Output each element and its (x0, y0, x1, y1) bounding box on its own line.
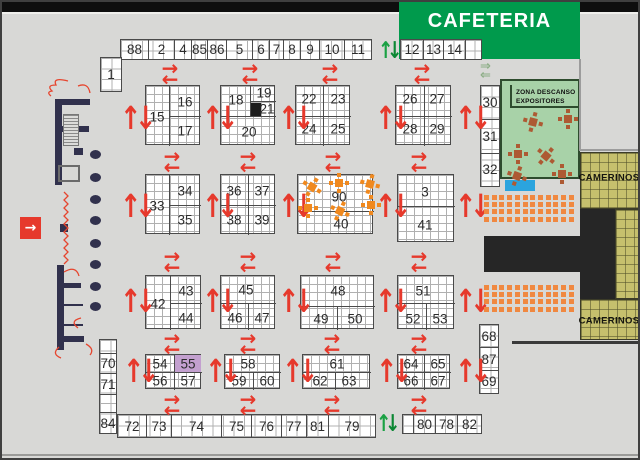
red-updown-arrows: ↑↓ (123, 355, 160, 387)
booth-label-74: 74 (189, 419, 204, 434)
plan-blue (505, 180, 535, 191)
red-aisle-arrows: →← (400, 251, 438, 273)
seat (553, 285, 558, 290)
seat (523, 202, 528, 207)
seat (492, 209, 497, 214)
plan-line-dark (512, 341, 640, 344)
seat (530, 307, 535, 312)
red-aisle-arrows: →← (229, 151, 267, 173)
red-aisle-arrows: →← (153, 394, 191, 416)
booth90-table-icon (335, 179, 343, 187)
seat (515, 307, 520, 312)
column-oval (90, 239, 101, 248)
door-arc-bottom-right (86, 344, 92, 355)
column-oval (90, 260, 101, 269)
booth-label-35: 35 (177, 213, 192, 228)
seat (569, 195, 574, 200)
left-arrow-icon: ← (400, 162, 438, 173)
strip-cell-11: 11 (344, 40, 371, 59)
seat (538, 217, 543, 222)
booth-label-17: 17 (177, 124, 192, 139)
seat (507, 299, 512, 304)
strip-cell-88: 88 (121, 40, 148, 59)
down-arrow-icon: ↓ (217, 187, 238, 225)
camerinos-label: CAMERINOS (579, 173, 640, 184)
door-arc-mid (64, 269, 79, 276)
seat (546, 195, 551, 200)
seat (569, 292, 574, 297)
red-updown-arrows: ↑↓ (278, 102, 315, 134)
strip-cell-9: 9 (300, 40, 319, 59)
column-oval (90, 173, 101, 182)
column-oval (90, 216, 101, 225)
seat (523, 299, 528, 304)
left-arrow-icon: ← (229, 405, 267, 416)
strip-cell-7: 7 (269, 40, 283, 59)
red-updown-arrows: ↑↓ (205, 355, 242, 387)
door-arc-lower (74, 318, 81, 328)
booth-label-72: 72 (124, 419, 139, 434)
booth-label-63: 63 (341, 374, 356, 389)
booth-label-84: 84 (100, 416, 115, 431)
door-arc-top-left (49, 80, 68, 96)
door-arc-top-right (78, 85, 90, 93)
seat (530, 292, 535, 297)
left-arrow-icon: ← (153, 162, 191, 173)
booth-label-47: 47 (254, 311, 269, 326)
down-arrow-icon: ↓ (470, 99, 491, 137)
rest-area-table-icon (558, 170, 566, 178)
red-aisle-arrows: →← (153, 151, 191, 173)
seat (561, 299, 566, 304)
seat (484, 292, 489, 297)
seat (515, 285, 520, 290)
seating-grid (484, 285, 576, 314)
seat (546, 217, 551, 222)
plan-wall (74, 148, 83, 155)
strip-cell-77: 77 (281, 415, 306, 437)
column-oval (90, 195, 101, 204)
strip-cell-86: 86 (207, 40, 226, 59)
booth-label-2: 2 (158, 42, 166, 57)
left-arrow-icon: ← (151, 74, 189, 85)
booth-label-32: 32 (482, 162, 497, 177)
red-updown-arrows: ↑↓ (120, 102, 157, 134)
seat (530, 209, 535, 214)
camerinos-area (615, 209, 640, 299)
seat (569, 209, 574, 214)
red-aisle-arrows: →← (313, 333, 351, 355)
booth-label-81: 81 (310, 419, 325, 434)
down-arrow-icon: ↓ (217, 99, 238, 137)
seat (538, 202, 543, 207)
plan-wall (60, 224, 68, 232)
booth-label-85: 85 (192, 42, 207, 57)
rest-area-label-line1: ZONA DESCANSO (516, 88, 578, 97)
seat (484, 195, 489, 200)
left-arrow-icon: ← (231, 74, 269, 85)
down-arrow-icon: ↓ (390, 187, 411, 225)
red-aisle-arrows: →← (400, 333, 438, 355)
red-updown-arrows: ↑↓ (202, 285, 239, 317)
plan-wall (64, 283, 81, 288)
down-arrow-icon: ↓ (220, 352, 241, 390)
booth-label-57: 57 (180, 374, 195, 389)
booth-label-65: 65 (430, 357, 445, 372)
booth-label-82: 82 (462, 417, 477, 432)
booth90-table-icon (304, 204, 312, 212)
seat (515, 202, 520, 207)
seat (507, 209, 512, 214)
down-arrow-icon: ↓ (390, 282, 411, 320)
booth-label-34: 34 (177, 184, 192, 199)
seat (499, 209, 504, 214)
seat (569, 202, 574, 207)
seat (553, 299, 558, 304)
seating-grid (484, 195, 576, 224)
bottom-wall-line (2, 454, 638, 456)
booth-label-48: 48 (330, 284, 345, 299)
booth-label-16: 16 (177, 95, 192, 110)
booth-label-39: 39 (254, 213, 269, 228)
strip-cell-85: 85 (191, 40, 207, 59)
rest-area-table-icon (564, 115, 572, 123)
booth-label-29: 29 (429, 122, 444, 137)
seat (515, 299, 520, 304)
seat (484, 307, 489, 312)
seat (569, 307, 574, 312)
seat (561, 195, 566, 200)
seat (530, 285, 535, 290)
strip-cell (100, 340, 116, 353)
red-updown-arrows: ↑↓ (455, 102, 492, 134)
booth-label-67: 67 (430, 374, 445, 389)
left-arrow-icon: ← (400, 262, 438, 273)
left-arrow-icon: ← (403, 74, 441, 85)
booth-label-40: 40 (333, 217, 348, 232)
down-arrow-icon: ↓ (135, 187, 156, 225)
plan-stair (63, 114, 79, 146)
left-arrow-icon: ← (229, 262, 267, 273)
seat (538, 209, 543, 214)
down-arrow-icon: ↓ (390, 99, 411, 137)
camerinos-label: CAMERINOS (579, 316, 640, 327)
red-aisle-arrows: →← (400, 394, 438, 416)
red-updown-arrows: ↑↓ (375, 102, 412, 134)
seat (538, 299, 543, 304)
booth-divider (170, 303, 202, 304)
red-aisle-arrows: →← (403, 63, 441, 85)
left-arrow-icon: ← (313, 405, 351, 416)
seat (530, 195, 535, 200)
seat (499, 195, 504, 200)
plan-stage (484, 236, 580, 272)
column-oval (90, 150, 101, 159)
plan-stage (580, 209, 615, 299)
down-arrow-icon: ↓ (217, 282, 238, 320)
rest-area-label-line2: EXPOSITORES (516, 97, 578, 106)
down-arrow-icon: ↓ (391, 352, 412, 390)
booth-label-53: 53 (432, 312, 447, 327)
seat (546, 209, 551, 214)
booth-label-11: 11 (351, 42, 365, 57)
booth-label-10: 10 (324, 42, 339, 57)
strip-cell-72: 72 (118, 415, 146, 437)
red-updown-arrows: ↑↓ (375, 285, 412, 317)
seat (530, 217, 535, 222)
strip-top-strip-right: 121314 (400, 39, 482, 60)
seat (484, 217, 489, 222)
booth-label-45: 45 (238, 283, 253, 298)
seat (507, 307, 512, 312)
booth-label-71: 71 (100, 377, 115, 392)
down-arrow-icon: ↓ (138, 352, 159, 390)
booth-label-43: 43 (178, 284, 193, 299)
red-aisle-arrows: →← (151, 63, 189, 85)
plan-wall (55, 99, 90, 105)
down-arrow-icon: ↓ (387, 38, 402, 64)
plan-wall (64, 304, 83, 306)
red-aisle-arrows: →← (314, 251, 352, 273)
booth-label-6: 6 (257, 42, 265, 57)
strip-strip-70-84: 707184 (99, 339, 117, 434)
cafeteria-label: CAFETERIA (399, 10, 580, 33)
seat (561, 217, 566, 222)
plan-line-gray (579, 149, 640, 151)
seat (499, 217, 504, 222)
seat (523, 195, 528, 200)
booth-label-20: 20 (241, 125, 256, 140)
strip-cell (100, 394, 116, 413)
seat (484, 299, 489, 304)
seat (499, 307, 504, 312)
booth-label-50: 50 (347, 312, 362, 327)
plan-wall (57, 265, 64, 350)
seat (546, 292, 551, 297)
booth-label-86: 86 (209, 42, 224, 57)
seat (569, 217, 574, 222)
column-oval (90, 282, 101, 291)
strip-cell-71: 71 (100, 373, 116, 394)
plan-room (58, 165, 80, 182)
strip-cell-82: 82 (457, 415, 481, 433)
red-aisle-arrows: →← (153, 333, 191, 355)
entrance-marker: → (20, 217, 41, 239)
down-arrow-icon: ↓ (385, 411, 400, 437)
seat (546, 285, 551, 290)
left-arrow-icon: ← (400, 344, 438, 355)
red-aisle-arrows: →← (231, 63, 269, 85)
strip-cell-70: 70 (100, 353, 116, 374)
left-arrow-icon: ← (229, 162, 267, 173)
seat (546, 307, 551, 312)
booth-label-4: 4 (179, 42, 187, 57)
seat (492, 202, 497, 207)
seat (515, 209, 520, 214)
left-arrow-icon: ← (400, 405, 438, 416)
booth-label-27: 27 (429, 92, 444, 107)
seat (484, 209, 489, 214)
seat (530, 299, 535, 304)
green-double-arrows: ⇒⇐ (480, 62, 491, 80)
booth-label-7: 7 (273, 42, 281, 57)
booth-label-19: 19 (256, 86, 271, 101)
rest-area-label: ZONA DESCANSO EXPOSITORES (510, 85, 578, 108)
down-arrow-icon: ↓ (293, 282, 314, 320)
left-arrow-icon: ← (229, 344, 267, 355)
seat (523, 307, 528, 312)
booth-label-13: 13 (426, 42, 441, 57)
seat (569, 285, 574, 290)
plan-wall (64, 324, 83, 326)
seat (561, 285, 566, 290)
entrance-arrow-icon: → (25, 220, 37, 236)
seat (507, 195, 512, 200)
strip-cell-8: 8 (283, 40, 300, 59)
seat (561, 202, 566, 207)
left-arrow-icon: ← (311, 74, 349, 85)
seat (538, 292, 543, 297)
booth-divider (169, 205, 201, 206)
down-arrow-icon: ↓ (470, 352, 491, 390)
seat (499, 202, 504, 207)
seat (492, 307, 497, 312)
seat (538, 307, 543, 312)
seat (538, 195, 543, 200)
seat (553, 217, 558, 222)
seat (492, 285, 497, 290)
seat (553, 202, 558, 207)
booth-label-88: 88 (127, 42, 142, 57)
seat (538, 285, 543, 290)
left-arrow-icon: ← (314, 162, 352, 173)
booth-label-44: 44 (178, 311, 193, 326)
strip-cell-1: 1 (101, 58, 121, 91)
booth-label-55: 55 (180, 357, 195, 372)
seat (507, 292, 512, 297)
strip-booth-1: 1 (100, 57, 122, 92)
strip-cell-14: 14 (443, 40, 465, 59)
down-arrow-icon: ↓ (135, 282, 156, 320)
green-updown-arrows: ↑↓ (376, 413, 400, 436)
plan-line-gray (579, 59, 581, 151)
seat (523, 292, 528, 297)
booth90-table-icon (367, 201, 375, 209)
left-arrow-icon: ← (153, 405, 191, 416)
strip-cell-32: 32 (481, 153, 499, 186)
booth-label-14: 14 (447, 42, 462, 57)
down-arrow-icon: ↓ (293, 99, 314, 137)
seat (523, 209, 528, 214)
booth-label-70: 70 (100, 356, 115, 371)
red-aisle-arrows: →← (311, 63, 349, 85)
seat (492, 292, 497, 297)
booth-label-68: 68 (481, 329, 496, 344)
seat (492, 195, 497, 200)
red-updown-arrows: ↑↓ (375, 190, 412, 222)
double-left-arrow-icon: ⇐ (480, 71, 491, 80)
red-aisle-arrows: →← (153, 251, 191, 273)
seat (507, 202, 512, 207)
down-arrow-icon: ↓ (135, 99, 156, 137)
strip-cell (465, 40, 481, 59)
rest-area: ZONA DESCANSO EXPOSITORES (500, 79, 580, 179)
seat (569, 299, 574, 304)
red-updown-arrows: ↑↓ (120, 285, 157, 317)
seat (484, 285, 489, 290)
booth-label-12: 12 (404, 42, 419, 57)
booth-label-79: 79 (344, 419, 359, 434)
strip-cell-68: 68 (480, 325, 498, 347)
seat (484, 202, 489, 207)
booth-label-90: 90 (331, 190, 346, 205)
seat (515, 217, 520, 222)
seat (492, 299, 497, 304)
strip-cell-84: 84 (100, 412, 116, 433)
booth-label-76: 76 (259, 419, 274, 434)
seat (561, 209, 566, 214)
booth-label-25: 25 (330, 122, 345, 137)
booth-label-8: 8 (288, 42, 296, 57)
seat (553, 307, 558, 312)
left-arrow-icon: ← (153, 262, 191, 273)
red-aisle-arrows: →← (400, 151, 438, 173)
booth-label-51: 51 (415, 284, 430, 299)
rest-area-table-icon (514, 150, 522, 158)
seat (553, 292, 558, 297)
red-updown-arrows: ↑↓ (120, 190, 157, 222)
strip-cell-78: 78 (435, 415, 457, 433)
booth-label-3: 3 (421, 185, 429, 200)
red-updown-arrows: ↑↓ (455, 355, 492, 387)
seat (492, 217, 497, 222)
booth-label-60: 60 (259, 374, 274, 389)
seat (499, 299, 504, 304)
green-updown-arrows: ↑↓ (378, 40, 402, 63)
seat (515, 195, 520, 200)
seat (530, 202, 535, 207)
red-updown-arrows: ↑↓ (282, 355, 319, 387)
seat (561, 292, 566, 297)
booth-label-37: 37 (254, 184, 269, 199)
booth-label-78: 78 (439, 417, 454, 432)
seat (507, 217, 512, 222)
seat (553, 195, 558, 200)
seat (499, 285, 504, 290)
red-aisle-arrows: →← (313, 394, 351, 416)
booth-label-9: 9 (306, 42, 314, 57)
booth-label-77: 77 (286, 419, 301, 434)
seat (523, 217, 528, 222)
booth-label-49: 49 (313, 312, 328, 327)
red-aisle-arrows: →← (229, 394, 267, 416)
booth-divider (169, 116, 201, 117)
booth90-table-icon (365, 179, 375, 189)
exhibition-floor-plan: CAFETERIA ZONA DESCANSO EXPOSITORES → CA… (0, 0, 640, 460)
seat (546, 202, 551, 207)
booth-label-5: 5 (236, 42, 244, 57)
seat (507, 285, 512, 290)
red-aisle-arrows: →← (229, 251, 267, 273)
column-oval (90, 302, 101, 311)
booth-label-23: 23 (330, 92, 345, 107)
left-arrow-icon: ← (313, 344, 351, 355)
red-updown-arrows: ↑↓ (202, 102, 239, 134)
red-updown-arrows: ↑↓ (278, 285, 315, 317)
red-updown-arrows: ↑↓ (376, 355, 413, 387)
red-updown-arrows: ↑↓ (202, 190, 239, 222)
seat (499, 292, 504, 297)
